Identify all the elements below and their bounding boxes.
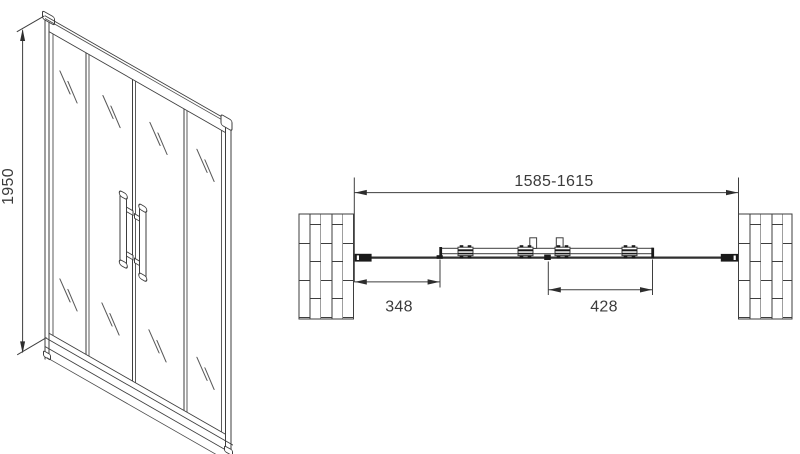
rail-end-cap-left (439, 247, 442, 258)
roller-carriage (555, 245, 570, 258)
glass-mark (149, 330, 166, 362)
dimension-arrow-left (549, 287, 561, 292)
dimension-arrow-right (640, 287, 652, 292)
rail-end-cap-right (651, 248, 654, 259)
dimension-arrow-left (355, 190, 367, 195)
glass-mark (197, 357, 214, 389)
glass-mark (197, 149, 214, 181)
technical-drawing-canvas: 1950 (0, 0, 800, 454)
right-stile-top-cap (221, 114, 232, 131)
plan-track (354, 238, 739, 262)
door-handles (119, 190, 147, 282)
door-handle-left (119, 190, 133, 272)
glass-mark (102, 303, 119, 335)
door-bottom-rail (45, 331, 233, 454)
left-panel-dimension: 348 (354, 260, 440, 316)
left-panel-dimension-label: 348 (385, 299, 413, 316)
right-wall-hatch (739, 214, 793, 319)
door-glass-marks (60, 71, 214, 389)
dimension-arrow-right (726, 190, 738, 195)
door-glass-panels (53, 34, 222, 432)
width-range-dimension-label: 1585-1615 (514, 173, 593, 190)
door-body (43, 11, 234, 454)
glass-mark (60, 71, 77, 103)
dimension-arrow-left (355, 279, 367, 284)
glass-mark (150, 123, 167, 155)
height-dimension-label: 1950 (0, 168, 17, 205)
drawing-sheet: 1950 (0, 0, 800, 454)
plan-view-drawing: 1585-1615 348 428 (299, 173, 792, 319)
front-view-drawing: 1950 (0, 11, 233, 454)
width-dimension: 1585-1615 (354, 173, 738, 282)
left-wall-hatch (299, 214, 354, 319)
roller-carriage (518, 245, 533, 258)
right-panel-dimension-label: 428 (590, 299, 618, 316)
dimension-arrow-up (20, 29, 25, 41)
height-dimension: 1950 (0, 16, 47, 355)
wall-bracket-left (354, 254, 372, 262)
glass-mark (60, 279, 77, 311)
panel-clip-center (544, 255, 551, 260)
door-handle-right (135, 201, 147, 283)
glass-mark (103, 96, 120, 128)
right-panel-dimension: 428 (548, 260, 652, 316)
dimension-arrow-right (428, 279, 440, 284)
roller-carriage (458, 245, 473, 258)
roller-carriage (622, 245, 637, 258)
dimension-arrow-down (20, 341, 25, 353)
door-right-stile (221, 114, 233, 454)
door-top-rail (45, 16, 228, 134)
